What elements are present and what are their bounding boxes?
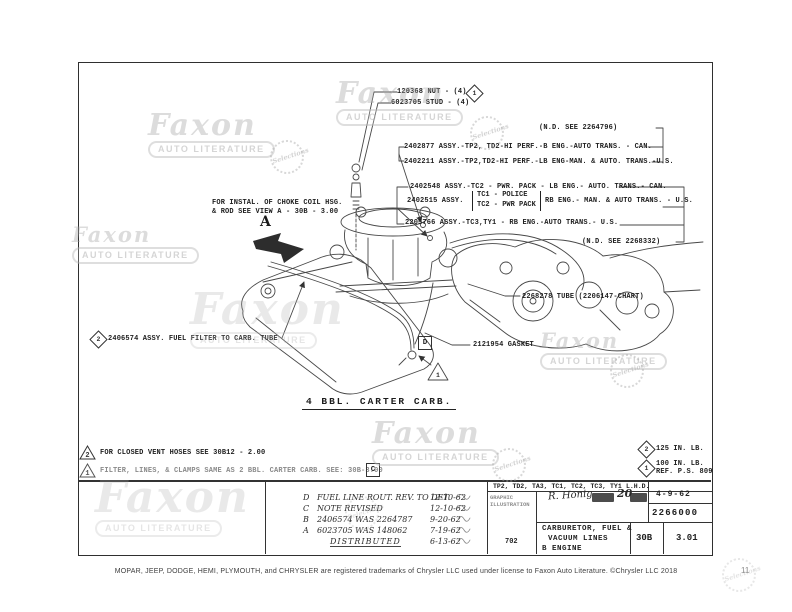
choke-note-line2: & ROD SEE VIEW A - 30B - 3.00 [212, 208, 338, 216]
triangle-number: 1 [85, 470, 89, 478]
model-codes: TP2, TD2, TA3, TC1, TC2, TC3, TY1 [493, 483, 622, 490]
assy-option-brace: TC1 - POLICE TC2 - PWR PACK [472, 191, 541, 211]
torque-100-ref: REF. P.S. 809 [656, 468, 713, 476]
drawing-border-frame [78, 62, 713, 556]
vent-hoses-note: FOR CLOSED VENT HOSES SEE 30B12 - 2.00 [100, 449, 265, 457]
revision-date: 12-10-62 [430, 493, 466, 502]
nd-ref-top: (N.D. SEE 2264796) [539, 124, 617, 132]
assy-callout-2402877: 2402877 ASSY.-TP2, TD2-HI PERF.-B ENG.-A… [404, 143, 652, 151]
titleblock-top-rule [78, 480, 711, 482]
fuel-filter-callout: 2406574 ASSY. FUEL FILTER TO CARB. TUBE [108, 335, 278, 343]
titleblock-title-rule [536, 522, 713, 523]
drawing-date: 4-9-62 [656, 490, 691, 499]
nd-ref-bottom: (N.D. SEE 2268332) [582, 238, 660, 246]
titleblock-sheet-divider-2 [663, 522, 664, 554]
revision-letter: A [303, 526, 309, 535]
scanned-parts-diagram-page: 1 120368 NUT - (4) 1 6023705 STUD - (4) … [0, 0, 792, 612]
triangle-number: 2 [85, 452, 89, 460]
revision-date: 12-10-62 [430, 504, 466, 513]
diamond-number: 1 [641, 463, 652, 474]
note-letter-c: C [366, 463, 380, 477]
revision-date: 7-19-62 [430, 526, 461, 535]
revision-date: 9-20-62 [430, 515, 461, 524]
assy-callout-2402515-suffix: RB ENG.- MAN. & AUTO TRANS. - U.S. [545, 197, 693, 205]
revision-letter: B [303, 515, 309, 524]
choke-note-line1: FOR INSTAL. OF CHOKE COIL HSG. [212, 199, 343, 207]
assy-option-tc2: TC2 - PWR PACK [477, 201, 536, 211]
revision-letter: C [303, 504, 309, 513]
page-number: 11 [741, 566, 749, 575]
stud-callout: 6023705 STUD - (4) [391, 99, 469, 107]
gasket-callout: 2121954 GASKET [473, 341, 534, 349]
diamond-number: 1 [469, 88, 480, 99]
revision-description: DISTRIBUTED [330, 537, 401, 547]
dept-name-line1: GRAPHIC [490, 494, 513, 501]
watermark-seal: Selections [718, 554, 761, 597]
assy-callout-2205766: 2205766 ASSY.-TC3,TY1 - RB ENG.-AUTO TRA… [405, 219, 618, 227]
diamond-number: 2 [641, 444, 652, 455]
diagram-caption: 4 BBL. CARTER CARB. [302, 396, 456, 410]
diamond-number: 2 [93, 334, 104, 345]
revision-description: NOTE REVISED [317, 504, 383, 513]
revision-letter: D [303, 493, 309, 502]
drawing-title-line3: B ENGINE [542, 545, 582, 553]
dept-number: 702 [505, 538, 518, 546]
triangle-symbol-1: 1 [79, 463, 96, 478]
sheet-code: 30B [636, 533, 652, 543]
tube-callout: 2268278 TUBE (2206147-CHART) [522, 293, 644, 301]
titleblock-divider-1 [265, 481, 266, 554]
drawing-number: 2266000 [652, 508, 698, 518]
assy-callout-2402515-prefix: 2402515 ASSY. [407, 197, 464, 205]
approval-stamp [592, 493, 614, 502]
dept-name-line2: ILLUSTRATION [490, 501, 530, 508]
drawing-title-line2: VACUUM LINES [548, 535, 608, 543]
torque-125-note: 125 IN. LB. [656, 445, 704, 453]
assy-callout-2402548: 2402548 ASSY.-TC2 - PWR. PACK - LB ENG.-… [410, 183, 667, 191]
drawing-title-line1: CARBURETOR, FUEL & [542, 525, 632, 533]
assy-option-tc1: TC1 - POLICE [477, 191, 536, 201]
nut-callout: 120368 NUT - (4) [397, 88, 467, 96]
filter-clamps-note: FILTER, LINES, & CLAMPS SAME AS 2 BBL. C… [100, 467, 383, 475]
approval-stamp [630, 493, 647, 502]
titleblock-date-rule [648, 503, 713, 504]
revision-description: 6023705 WAS 148062 [317, 526, 407, 535]
view-a-letter: A [260, 214, 271, 230]
revision-date: 6-13-62 [430, 537, 461, 546]
triangle-symbol-2: 2 [79, 445, 96, 460]
revision-description: 2406574 WAS 2264787 [317, 515, 412, 524]
torque-100-note: 100 IN. LB. [656, 460, 704, 468]
sheet-revision: 3.01 [676, 533, 698, 543]
assy-callout-2402211: 2402211 ASSY.-TP2,TD2-HI PERF.-LB ENG-MA… [404, 158, 674, 166]
trademark-footer: MOPAR, JEEP, DODGE, HEMI, PLYMOUTH, and … [0, 568, 792, 575]
detail-letter-d: D [418, 336, 432, 350]
